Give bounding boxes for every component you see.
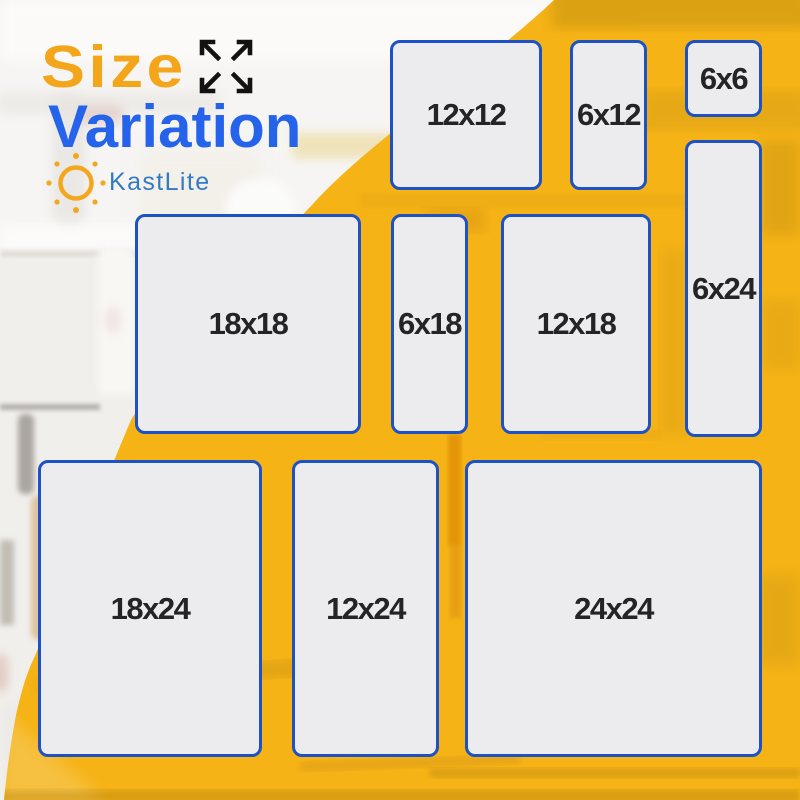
svg-text:KastLite: KastLite (109, 168, 211, 196)
